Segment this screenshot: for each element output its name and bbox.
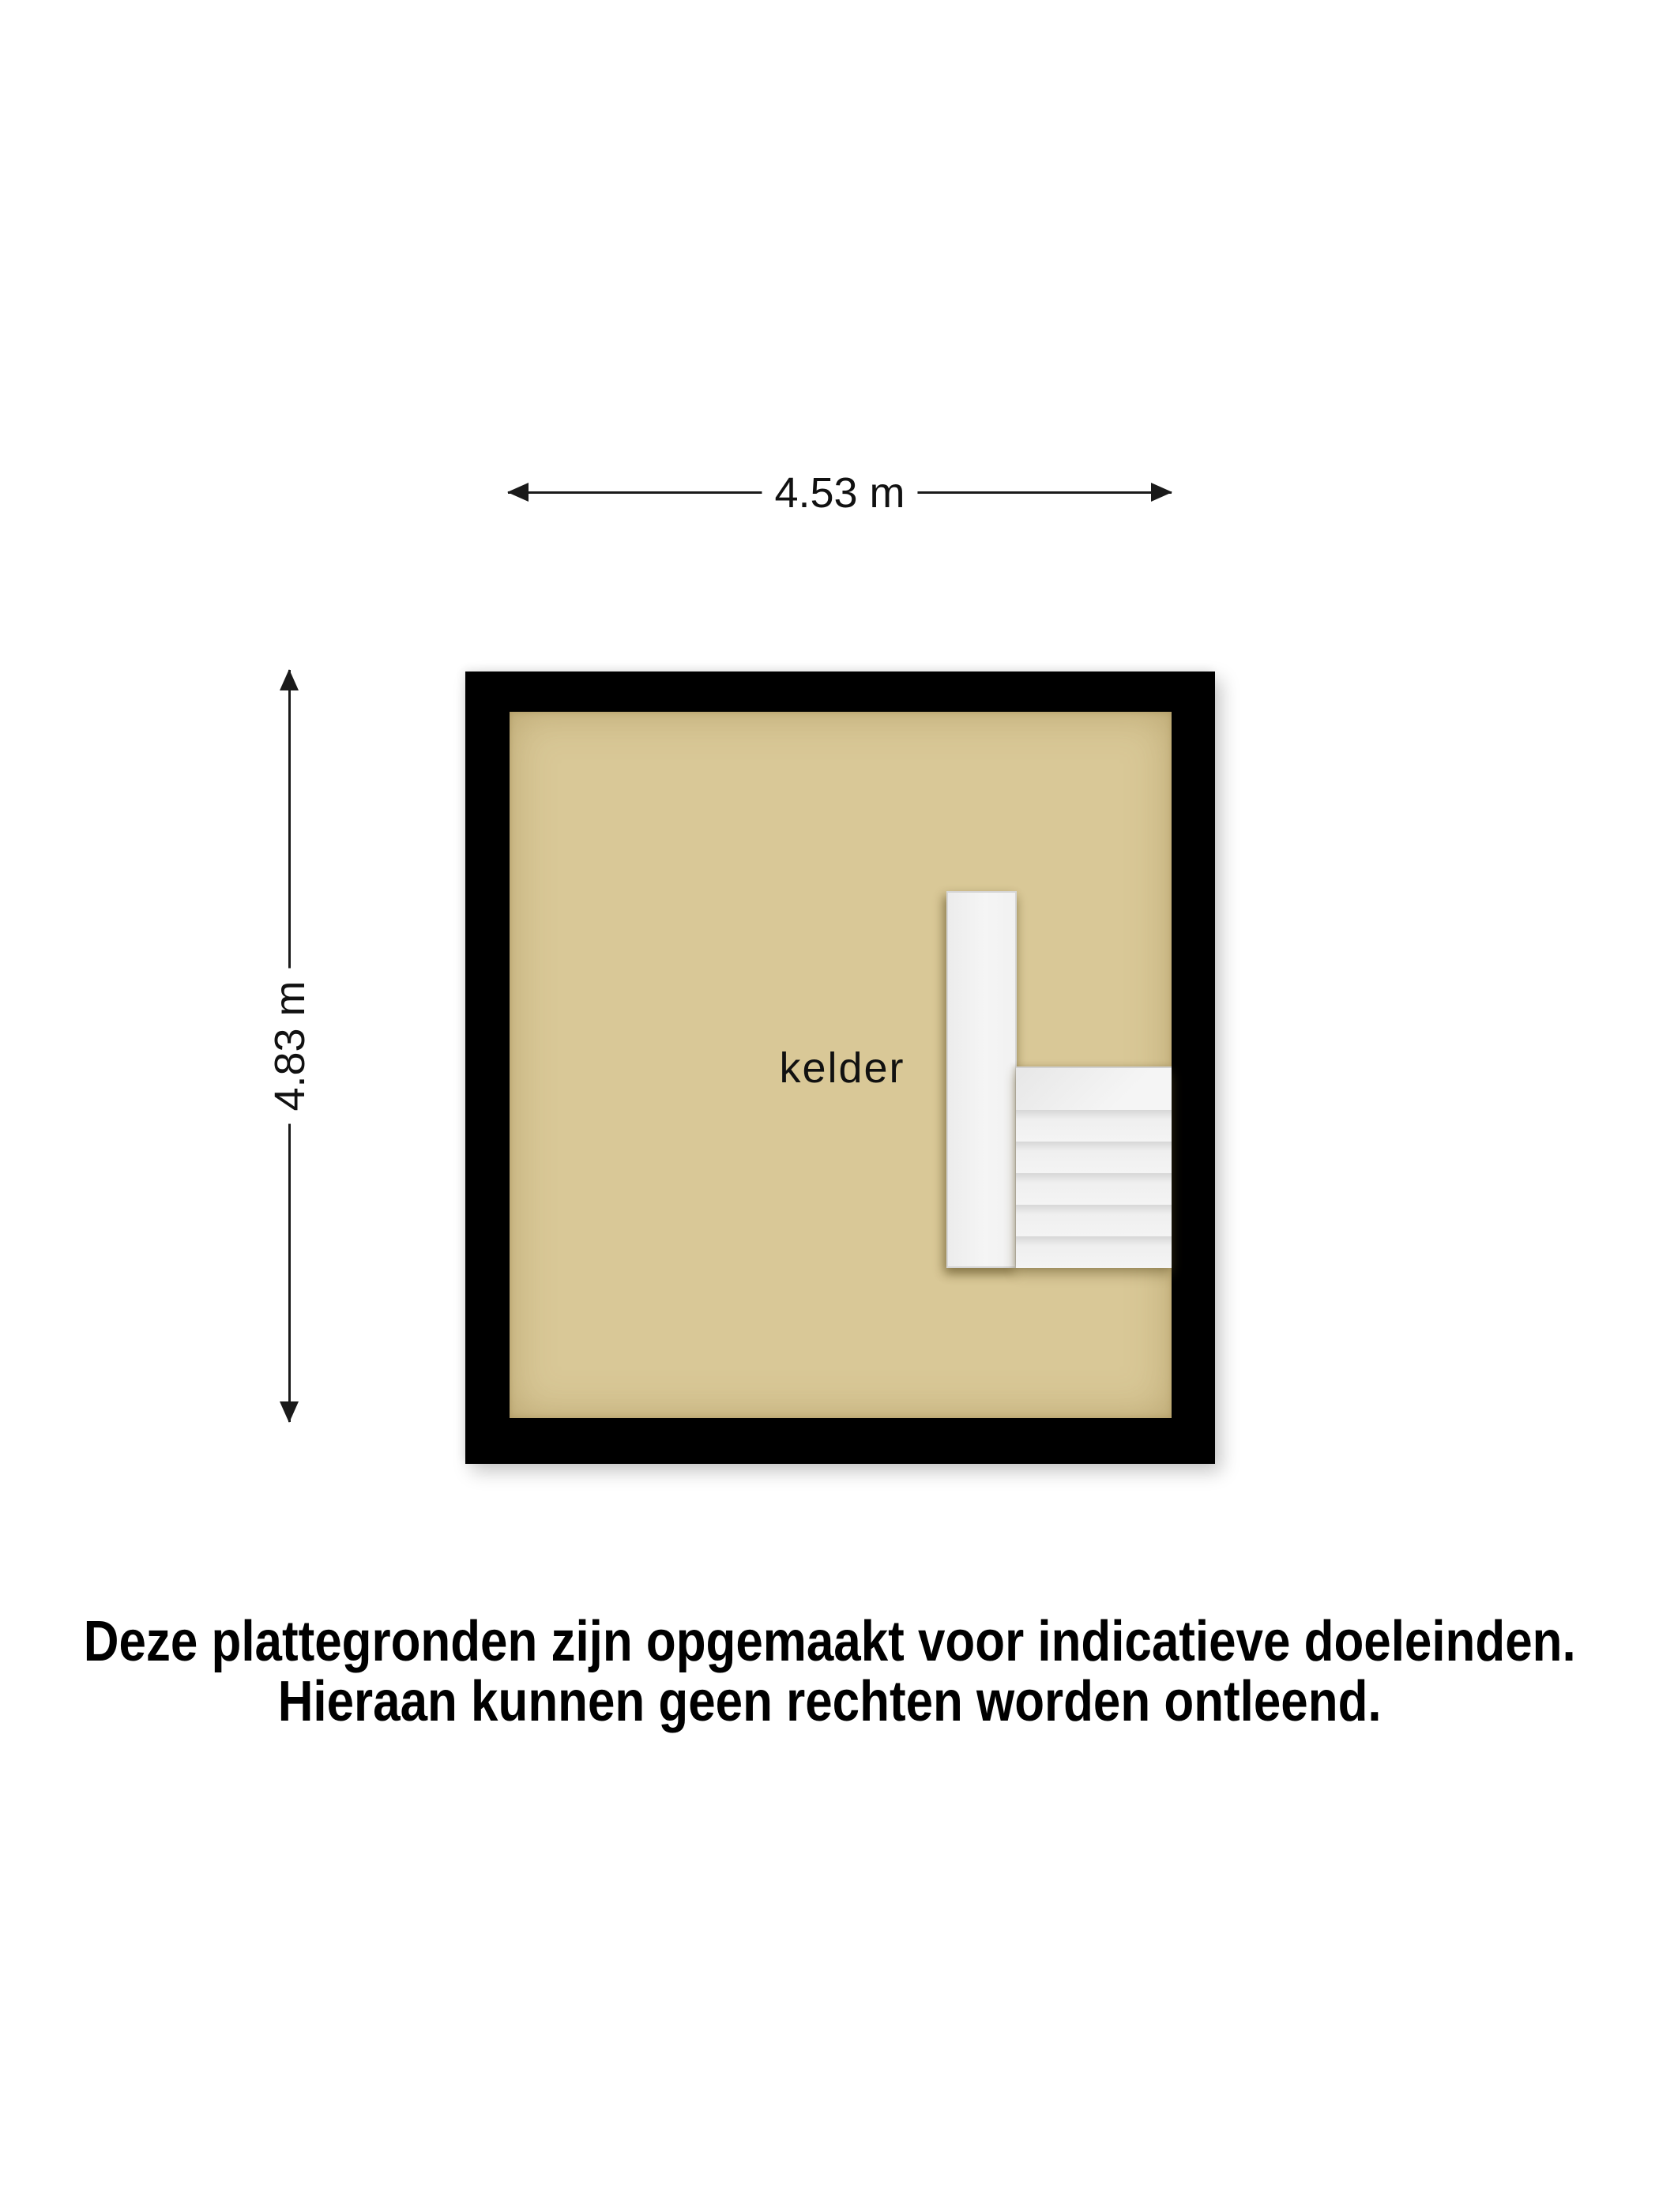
disclaimer-line-2: Hieraan kunnen geen rechten worden ontle… xyxy=(278,1672,1382,1732)
stair-step xyxy=(1016,1173,1172,1205)
floorplan-page: 4.53 m 4.83 m kelder Deze plattegronden … xyxy=(0,0,1659,2212)
staircase xyxy=(1016,1066,1172,1268)
stair-step xyxy=(1016,1110,1172,1142)
stair-step xyxy=(1016,1205,1172,1236)
room-kelder: kelder xyxy=(510,712,1172,1418)
dimension-width-label: 4.53 m xyxy=(762,468,917,517)
stair-step xyxy=(1016,1142,1172,1173)
room-label: kelder xyxy=(779,1047,905,1089)
arrow-down-icon xyxy=(280,1401,299,1423)
stair-landing-strip xyxy=(946,891,1017,1268)
dimension-height: 4.83 m xyxy=(268,670,312,1422)
floorplan: kelder xyxy=(465,671,1215,1464)
stair-top-landing xyxy=(1016,1066,1172,1110)
arrow-right-icon xyxy=(1151,483,1172,502)
dimension-width: 4.53 m xyxy=(508,471,1172,515)
arrow-left-icon xyxy=(507,483,529,502)
dimension-height-label: 4.83 m xyxy=(265,968,314,1123)
stair-step xyxy=(1016,1236,1172,1268)
arrow-up-icon xyxy=(280,669,299,690)
disclaimer-line-1: Deze plattegronden zijn opgemaakt voor i… xyxy=(84,1612,1576,1672)
disclaimer: Deze plattegronden zijn opgemaakt voor i… xyxy=(0,1612,1659,1732)
